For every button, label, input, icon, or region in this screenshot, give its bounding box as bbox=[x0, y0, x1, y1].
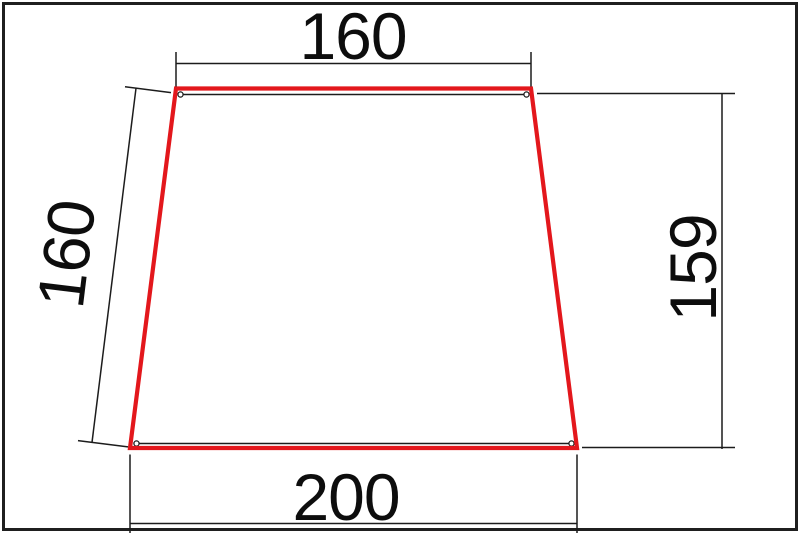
dimension-lines bbox=[78, 52, 735, 533]
corner-mark-top-left bbox=[178, 92, 183, 97]
trapezoid-red-outline bbox=[130, 89, 577, 449]
right-dim-label: 159 bbox=[656, 214, 730, 321]
part-outline-black bbox=[134, 92, 574, 446]
technical-drawing-svg: 160 200 159 160 bbox=[0, 0, 800, 537]
left-dim-extension-top bbox=[125, 87, 171, 93]
corner-mark-top-right bbox=[524, 92, 529, 97]
corner-mark-bottom-left bbox=[134, 441, 139, 446]
corner-mark-bottom-right bbox=[569, 441, 574, 446]
left-dim-extension-bottom bbox=[78, 441, 128, 447]
bottom-dim-label: 200 bbox=[292, 460, 399, 534]
drawing-canvas: 160 200 159 160 bbox=[0, 0, 800, 537]
top-dim-label: 160 bbox=[299, 0, 406, 73]
left-dim-label: 160 bbox=[23, 197, 110, 312]
